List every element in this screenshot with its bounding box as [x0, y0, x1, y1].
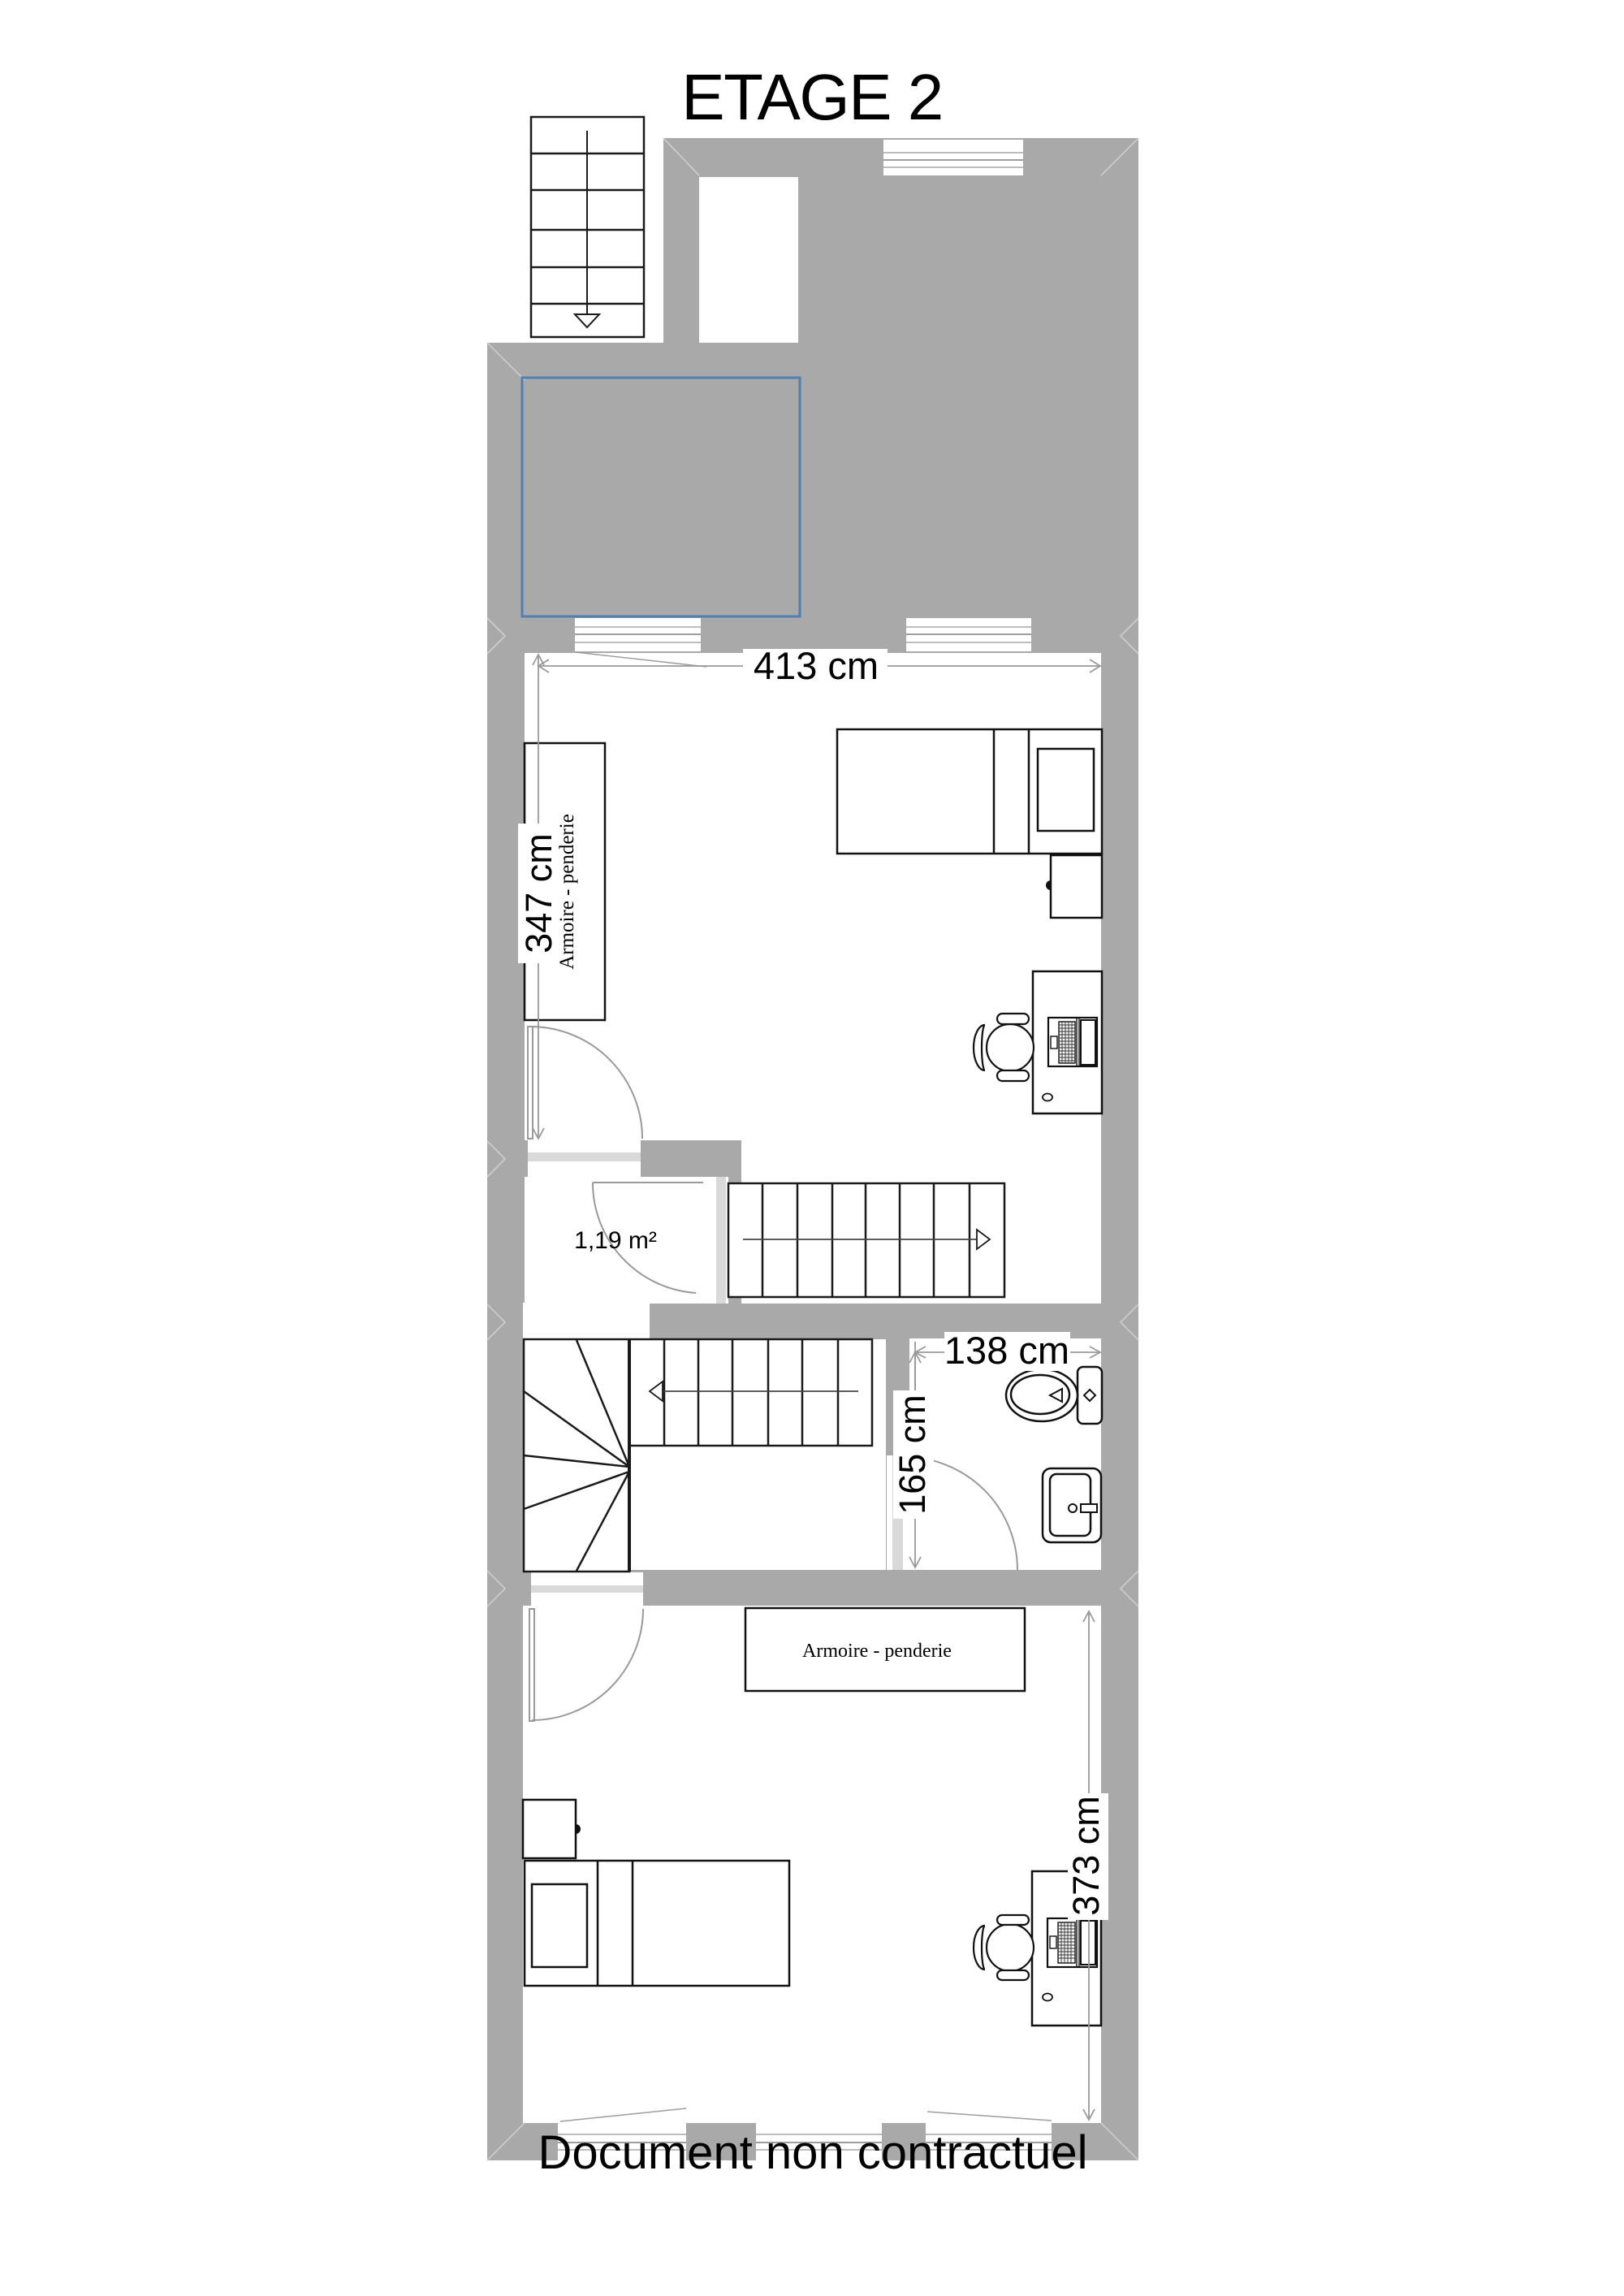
svg-text:373 cm: 373 cm [1065, 1796, 1107, 1916]
svg-text:ETAGE 2: ETAGE 2 [681, 61, 942, 133]
svg-text:Armoire - penderie: Armoire - penderie [802, 1641, 952, 1662]
svg-text:1,19 m²: 1,19 m² [574, 1227, 657, 1254]
svg-text:Document non contractuel: Document non contractuel [538, 2126, 1087, 2179]
svg-text:347 cm: 347 cm [518, 833, 559, 953]
svg-text:165 cm: 165 cm [892, 1394, 933, 1515]
svg-text:138 cm: 138 cm [944, 1329, 1069, 1372]
svg-text:Armoire - penderie: Armoire - penderie [556, 814, 578, 970]
svg-text:413 cm: 413 cm [754, 644, 879, 687]
